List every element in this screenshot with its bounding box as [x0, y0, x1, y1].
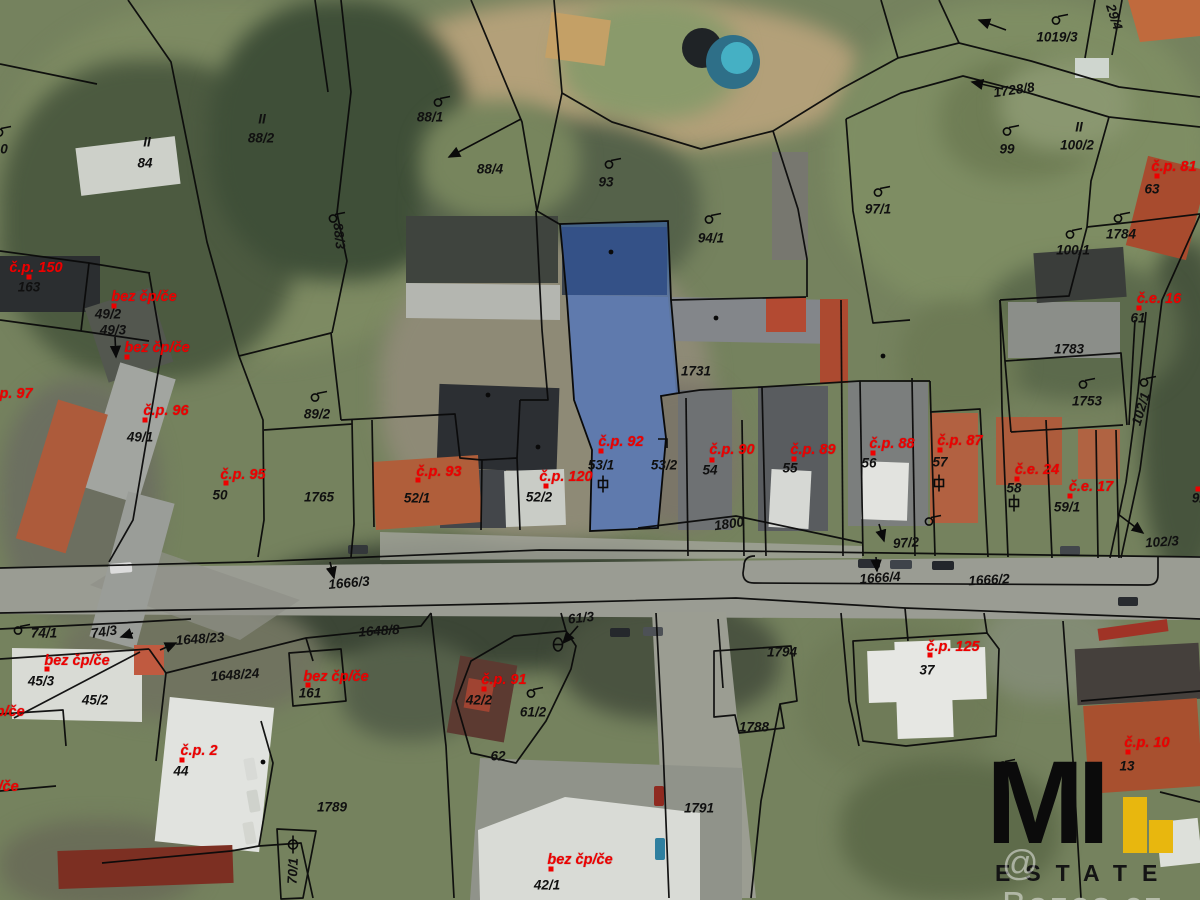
building-number-label: č.e. 17: [1069, 480, 1113, 495]
building-number-label: bez čp/če: [303, 670, 368, 685]
parcel-number-label: 1648/23: [175, 631, 225, 648]
building-point-marker: [710, 458, 715, 463]
flag-map-symbol-icon: [603, 156, 623, 175]
building-number-label: č.p. 93: [416, 465, 461, 480]
flag-map-symbol-icon: [923, 513, 943, 532]
parcel-number-label: II: [1075, 120, 1083, 134]
parcel-number-label: 42/2: [466, 693, 492, 707]
parcel-number-label: 1788: [739, 720, 769, 734]
parcel-number-label: 1666/4: [859, 570, 901, 586]
parcel-number-label: II: [258, 112, 266, 126]
parcel-number-label: 59/1: [1054, 500, 1080, 514]
parcel-number-label: 100/1: [1056, 243, 1090, 257]
building-point-marker: [45, 667, 50, 672]
parcel-number-label: 53/2: [651, 458, 677, 472]
building-point-marker: [224, 481, 229, 486]
parcel-number-label: 93: [598, 175, 613, 189]
parcel-number-label: 1791: [684, 801, 714, 815]
flag-map-symbol-icon: [525, 685, 545, 704]
building-point-marker: [27, 275, 32, 280]
building-number-label: č.p. 2: [180, 744, 217, 759]
building-number-label: č.p. 125: [926, 640, 979, 655]
flag-map-symbol-icon: [872, 184, 892, 203]
parcel-number-label: 49/2: [95, 307, 121, 321]
parcel-number-label: 0: [0, 142, 8, 156]
building-point-marker: [1068, 494, 1073, 499]
parcel-number-label: 102/1: [1130, 391, 1153, 427]
parcel-number-label: 1789: [317, 800, 347, 814]
parcel-number-label: 1728/8: [993, 80, 1036, 99]
parcel-number-label: 1731: [681, 364, 711, 378]
flag-map-symbol-icon: [1064, 226, 1084, 245]
parcel-number-label: 58: [1006, 481, 1021, 495]
building-point-marker: [143, 418, 148, 423]
parcel-number-label: 1800: [713, 515, 745, 533]
flag-map-symbol-icon: [1112, 210, 1132, 229]
building-point-marker: [482, 687, 487, 692]
building-number-label: č.p. 150: [9, 261, 62, 276]
flag-map-symbol-icon: [432, 94, 452, 113]
parcel-number-label: 49/3: [100, 323, 126, 337]
parcel-number-label: 97/2: [892, 535, 919, 550]
parcel-number-label: 50: [212, 488, 227, 502]
building-point-marker: [112, 304, 117, 309]
parcel-number-label: 54: [702, 463, 717, 477]
flag-map-symbol-icon: [1050, 12, 1070, 31]
parcel-number-label: 49/1: [127, 430, 153, 444]
parcel-number-label: 13: [1119, 759, 1134, 773]
parcel-number-label: 61/3: [567, 610, 595, 626]
parcel-number-label: 1019/3: [1036, 30, 1077, 44]
parcel-number-label: 45/2: [82, 693, 108, 707]
parcel-number-label: 92/1: [1192, 491, 1200, 505]
flag-map-symbol-icon: [703, 211, 723, 230]
building-number-label: bez čp/če: [111, 290, 176, 305]
parcel-number-label: 74/3: [90, 623, 118, 640]
phi-map-symbol-icon: [286, 836, 300, 859]
gate-map-symbol-icon: [1007, 495, 1021, 518]
parcel-number-label: 61: [1130, 311, 1145, 325]
building-point-marker: [792, 457, 797, 462]
building-point-marker: [125, 355, 130, 360]
parcel-number-label: 1666/3: [328, 574, 370, 591]
building-number-label: č.p. 81: [1151, 160, 1196, 175]
parcel-number-label: 94/1: [698, 231, 724, 245]
parcel-number-label: 1765: [304, 490, 334, 504]
parcel-number-label: 102/3: [1145, 534, 1180, 550]
flag-map-symbol-icon: [1138, 374, 1158, 393]
building-number-label: bez čp/če: [44, 654, 109, 669]
building-number-label: č.p. 89: [790, 443, 835, 458]
building-number-label: č.p. 88: [869, 437, 914, 452]
building-number-label: č.p. 87: [937, 434, 982, 449]
parcel-number-label: 52/2: [526, 490, 552, 504]
building-number-label: č.p. 96: [143, 404, 188, 419]
theta-map-symbol-icon: [551, 637, 565, 658]
cadastral-map-image[interactable]: 84II88/2II88/188/488/39394/11019/31728/8…: [0, 0, 1200, 900]
flag-map-symbol-icon: [1001, 123, 1021, 142]
building-point-marker: [871, 451, 876, 456]
building-point-marker: [599, 449, 604, 454]
flag-map-symbol-icon: [327, 210, 347, 229]
building-point-marker: [938, 448, 943, 453]
building-point-marker: [306, 683, 311, 688]
building-number-label: č.p. 120: [539, 470, 592, 485]
building-number-label: bez čp/če: [0, 705, 25, 720]
building-point-marker: [180, 758, 185, 763]
parcel-number-label: 88/2: [248, 131, 274, 145]
parcel-number-label: 61/2: [520, 705, 546, 719]
parcel-number-label: II: [143, 135, 151, 149]
parcel-number-label: 1784: [1106, 227, 1136, 241]
parcel-number-label: 97/1: [865, 202, 891, 216]
parcel-number-label: 45/3: [28, 674, 54, 688]
building-point-marker: [544, 484, 549, 489]
parcel-number-label: 163: [18, 280, 41, 294]
building-number-label: č.p. 90: [709, 443, 754, 458]
flag-map-symbol-icon: [1077, 376, 1097, 395]
parcel-number-label: 89/2: [304, 407, 330, 421]
parcel-number-label: 99: [999, 142, 1014, 156]
parcel-number-label: 1666/2: [968, 572, 1010, 588]
parcel-number-label: 161: [299, 686, 322, 700]
parcel-number-label: 1794: [767, 645, 797, 659]
building-point-marker: [1126, 750, 1131, 755]
parcel-number-label: 70/1: [286, 858, 301, 885]
building-point-marker: [1155, 174, 1160, 179]
building-point-marker: [416, 478, 421, 483]
parcel-number-label: 1753: [1072, 394, 1102, 408]
building-point-marker: [1137, 306, 1142, 311]
parcel-number-label: 52/1: [404, 491, 430, 505]
bazos-watermark: @ Bazos.cz: [1002, 842, 1200, 900]
building-point-marker: [549, 867, 554, 872]
parcel-number-label: 63: [1144, 182, 1159, 196]
parcel-number-label: 56: [861, 456, 876, 470]
building-number-label: bez čp/če: [0, 780, 19, 795]
parcel-number-label: 44: [173, 764, 188, 778]
building-number-label: č.p. 92: [598, 435, 643, 450]
parcel-number-label: 84: [137, 156, 152, 170]
parcel-number-label: 42/1: [534, 878, 560, 892]
building-number-label: č.p. 91: [481, 673, 526, 688]
parcel-number-label: 55: [782, 461, 797, 475]
corner-map-symbol-icon: [657, 437, 669, 455]
parcel-number-label: 37: [919, 663, 934, 677]
building-number-label: bez čp/če: [547, 853, 612, 868]
building-number-label: č.e. 24: [1015, 463, 1059, 478]
gate-map-symbol-icon: [932, 475, 946, 498]
parcel-number-label: 62: [490, 749, 505, 763]
parcel-number-label: 1648/24: [210, 667, 260, 684]
building-number-label: č.p. 97: [0, 387, 33, 402]
parcel-number-label: 29/4: [1104, 2, 1125, 31]
flag-map-symbol-icon: [309, 389, 329, 408]
parcel-number-label: 74/1: [31, 626, 57, 640]
building-point-marker: [1196, 487, 1200, 492]
flag-map-symbol-icon: [12, 622, 32, 641]
parcel-number-label: 57: [932, 455, 947, 469]
parcel-number-label: 1648/8: [358, 623, 400, 639]
gate-map-symbol-icon: [596, 476, 610, 499]
building-number-label: č.e. 16: [1137, 292, 1181, 307]
parcel-number-label: 88/4: [477, 162, 503, 176]
building-number-label: č.p. 10: [1124, 736, 1169, 751]
flag-map-symbol-icon: [0, 124, 13, 143]
building-number-label: bez čp/če: [124, 341, 189, 356]
building-point-marker: [928, 653, 933, 658]
parcel-number-label: 1783: [1054, 342, 1084, 356]
parcel-number-label: 100/2: [1060, 138, 1094, 152]
building-point-marker: [1015, 477, 1020, 482]
